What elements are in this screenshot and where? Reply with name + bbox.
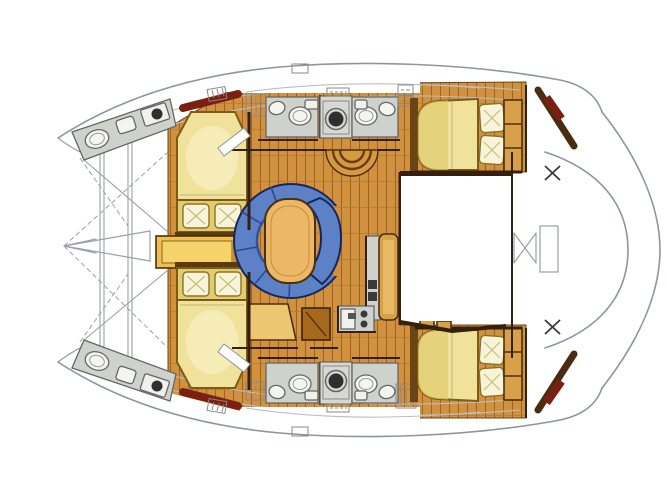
center-nacelle-bow (64, 231, 150, 261)
bow-trampoline (64, 134, 168, 368)
hull-side-wall (538, 90, 574, 146)
toilet-icon (289, 107, 311, 125)
bow-head-port (72, 99, 176, 160)
forward-cabin-starboard (175, 262, 249, 388)
toilet-icon (355, 107, 377, 125)
floor-plan-drawing (0, 0, 667, 500)
stern-cross-mark (545, 166, 560, 180)
cockpit-seat-marks (514, 233, 536, 263)
stern-cross-mark (545, 320, 560, 334)
nav-seat (248, 304, 296, 340)
bow-head-starboard (72, 340, 176, 401)
cockpit-table-outline (540, 226, 558, 272)
washer-drum-icon (329, 112, 344, 127)
washer-drum-icon (329, 374, 344, 389)
salon-table (265, 199, 315, 283)
cockpit-well (401, 175, 512, 321)
catamaran-floor-plan (0, 0, 667, 500)
toilet-icon (355, 375, 377, 393)
stove-burner-icon (361, 321, 368, 328)
hull-side-wall (538, 354, 574, 410)
toilet-icon (289, 375, 311, 393)
stove-burner-icon (361, 311, 368, 318)
